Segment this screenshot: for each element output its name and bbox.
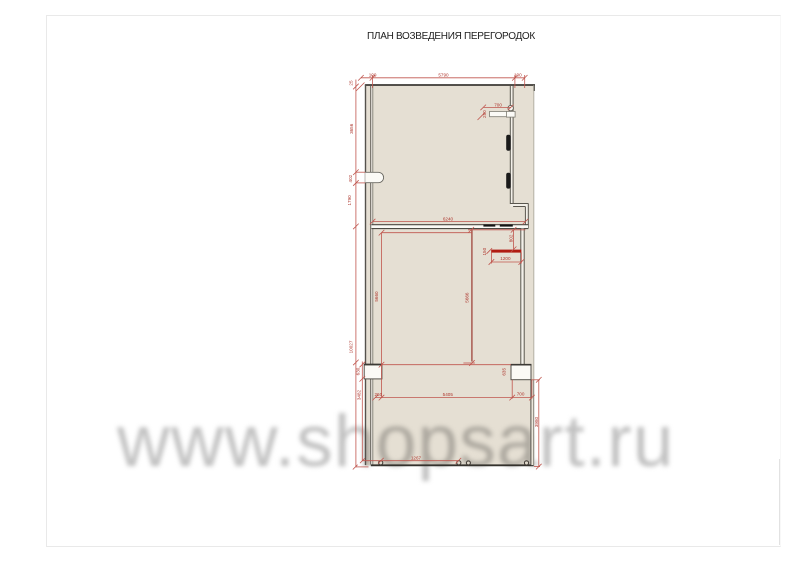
svg-text:700: 700 <box>494 102 502 107</box>
svg-text:5405: 5405 <box>443 392 454 397</box>
svg-text:100: 100 <box>369 73 377 78</box>
svg-text:5660: 5660 <box>374 291 379 302</box>
svg-text:5790: 5790 <box>438 73 449 78</box>
svg-text:635: 635 <box>501 368 506 376</box>
svg-text:1790: 1790 <box>347 195 352 206</box>
svg-text:250: 250 <box>482 110 487 118</box>
svg-text:10027: 10027 <box>349 340 354 353</box>
svg-text:802: 802 <box>508 234 513 242</box>
svg-text:3482: 3482 <box>357 389 362 400</box>
svg-text:25: 25 <box>349 80 354 86</box>
svg-text:260: 260 <box>374 392 382 397</box>
svg-text:3980: 3980 <box>534 416 539 427</box>
svg-text:1267: 1267 <box>411 456 422 461</box>
svg-text:700: 700 <box>517 392 525 397</box>
svg-text:1200: 1200 <box>500 256 511 261</box>
svg-text:402: 402 <box>348 174 353 182</box>
svg-text:100: 100 <box>514 73 522 78</box>
svg-text:150: 150 <box>482 247 487 255</box>
svg-text:6240: 6240 <box>443 217 454 222</box>
svg-text:3656: 3656 <box>349 123 354 134</box>
svg-text:630: 630 <box>355 367 360 375</box>
svg-text:5666: 5666 <box>465 292 470 303</box>
